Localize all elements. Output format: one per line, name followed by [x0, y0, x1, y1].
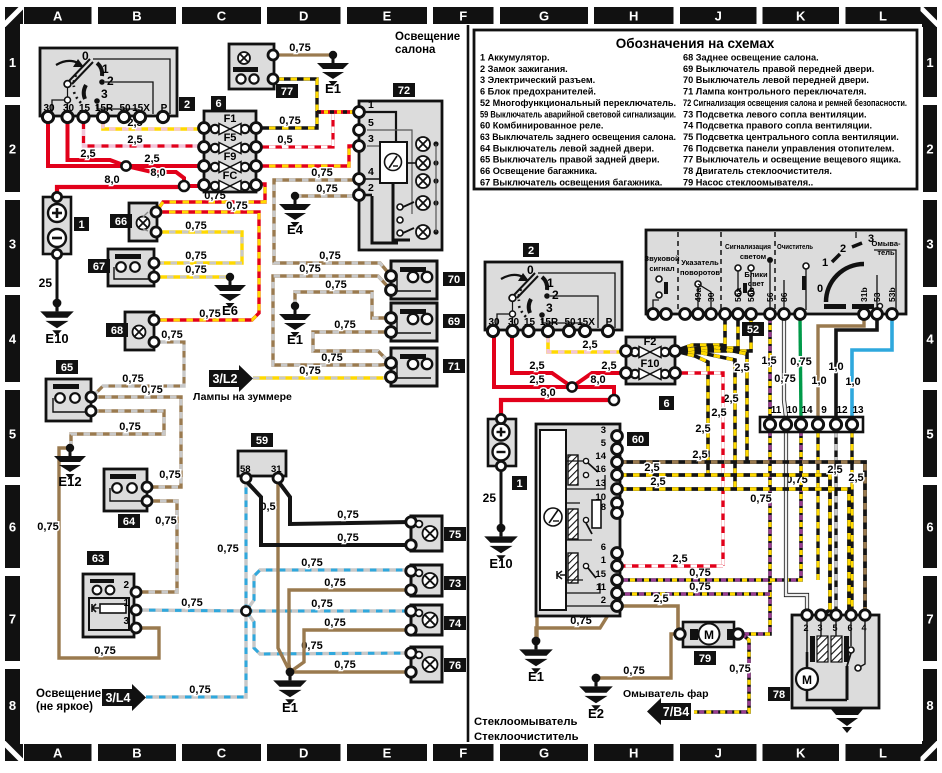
svg-text:L: L [879, 9, 887, 24]
svg-text:J: J [715, 746, 722, 761]
svg-text:31b: 31b [859, 287, 869, 302]
svg-text:73 Подсветка левого сопла вент: 73 Подсветка левого сопла вентиляции. [683, 109, 867, 119]
svg-text:E10: E10 [489, 556, 512, 571]
svg-text:69: 69 [448, 316, 460, 328]
svg-text:71: 71 [448, 361, 460, 373]
svg-text:7: 7 [926, 612, 933, 627]
svg-text:M: M [802, 673, 812, 687]
svg-text:8,0: 8,0 [104, 174, 119, 186]
svg-text:66 Освещение багажника.: 66 Освещение багажника. [480, 166, 597, 176]
svg-text:0,75: 0,75 [623, 665, 644, 677]
svg-text:F5: F5 [224, 132, 237, 144]
svg-text:FC: FC [223, 170, 238, 182]
svg-text:3: 3 [601, 425, 606, 436]
svg-text:0,75: 0,75 [311, 598, 332, 610]
svg-text:75: 75 [449, 529, 461, 541]
svg-text:Указатель: Указатель [681, 258, 719, 267]
svg-text:52 Многофункциональный переклю: 52 Многофункциональный переключатель. [480, 98, 676, 108]
svg-text:2: 2 [803, 623, 808, 633]
svg-text:1: 1 [516, 478, 522, 490]
svg-text:7/B4: 7/B4 [663, 705, 689, 719]
svg-text:0,75: 0,75 [337, 532, 358, 544]
svg-text:78 Двигатель стеклоочистителя.: 78 Двигатель стеклоочистителя. [683, 166, 832, 176]
svg-text:69 Выключатель правой передней: 69 Выключатель правой передней двери. [683, 64, 874, 74]
svg-text:60 Комбинированное реле.: 60 Комбинированное реле. [480, 121, 603, 131]
svg-text:2,5: 2,5 [695, 423, 710, 435]
svg-text:2,5: 2,5 [827, 464, 842, 476]
svg-text:2,5: 2,5 [653, 593, 668, 605]
svg-text:14: 14 [801, 405, 813, 416]
svg-text:6 Блок предохранителей.: 6 Блок предохранителей. [480, 87, 596, 97]
svg-text:0,75: 0,75 [334, 319, 355, 331]
svg-text:14: 14 [595, 451, 606, 462]
svg-text:0,75: 0,75 [689, 581, 710, 593]
svg-text:70: 70 [448, 274, 460, 286]
svg-text:Лампы на зуммере: Лампы на зуммере [193, 391, 292, 403]
svg-text:поворотов: поворотов [680, 268, 720, 277]
svg-text:0,75: 0,75 [334, 659, 355, 671]
svg-text:72 Сигнализация освещения сало: 72 Сигнализация освещения салона и ремне… [683, 98, 907, 108]
svg-text:59 Выключатель аварийной свето: 59 Выключатель аварийной световой сигнал… [480, 109, 676, 119]
svg-text:0,75: 0,75 [321, 352, 342, 364]
svg-text:3 Электрический разъем.: 3 Электрический разъем. [480, 75, 595, 85]
svg-text:F: F [459, 9, 467, 24]
svg-text:86: 86 [779, 292, 789, 302]
svg-text:1: 1 [78, 219, 84, 231]
svg-text:1,0: 1,0 [828, 361, 843, 373]
svg-text:4: 4 [926, 332, 934, 347]
svg-text:79 Насос стеклоомывателя..: 79 Насос стеклоомывателя.. [683, 177, 813, 187]
svg-text:12: 12 [836, 405, 848, 416]
svg-text:B: B [132, 746, 141, 761]
svg-text:2,5: 2,5 [650, 476, 665, 488]
svg-text:3: 3 [817, 623, 822, 633]
svg-text:(не яркое): (не яркое) [36, 701, 93, 713]
svg-text:E1: E1 [282, 700, 298, 715]
svg-text:6: 6 [926, 520, 933, 535]
svg-text:8,0: 8,0 [150, 167, 165, 179]
svg-text:F10: F10 [641, 358, 660, 370]
svg-text:Освещение: Освещение [395, 31, 460, 43]
svg-text:1: 1 [123, 598, 129, 609]
svg-text:F1: F1 [224, 113, 237, 125]
svg-text:2,5: 2,5 [582, 339, 597, 351]
svg-text:C: C [217, 9, 227, 24]
svg-text:70 Выключатель левой передней: 70 Выключатель левой передней двери. [683, 75, 869, 85]
svg-text:G: G [539, 746, 549, 761]
svg-text:E2: E2 [588, 706, 604, 721]
svg-text:Стеклоочиститель: Стеклоочиститель [474, 731, 579, 743]
svg-text:Омыватель фар: Омыватель фар [623, 688, 709, 700]
svg-text:6: 6 [847, 623, 852, 633]
svg-text:77: 77 [281, 86, 293, 98]
svg-text:49a: 49a [693, 288, 703, 302]
svg-text:64 Выключатель левой задней дв: 64 Выключатель левой задней двери. [480, 143, 654, 153]
svg-text:M: M [704, 628, 714, 642]
svg-text:7: 7 [9, 612, 16, 627]
svg-text:Стеклоомыватель: Стеклоомыватель [474, 716, 578, 728]
svg-text:30: 30 [706, 292, 716, 302]
svg-text:2,5: 2,5 [672, 553, 687, 565]
svg-text:0: 0 [817, 283, 823, 295]
svg-text:K: K [796, 9, 806, 24]
svg-text:4: 4 [861, 623, 866, 633]
svg-text:A: A [53, 746, 63, 761]
svg-text:76: 76 [449, 660, 461, 672]
svg-text:3: 3 [868, 233, 874, 245]
svg-text:0,75: 0,75 [319, 250, 340, 262]
svg-text:56: 56 [765, 292, 775, 302]
svg-text:78: 78 [773, 689, 785, 701]
svg-text:77 Выключатель и освещение вещ: 77 Выключатель и освещение вещевого ящик… [683, 155, 901, 165]
svg-text:0,75: 0,75 [301, 557, 322, 569]
svg-text:E1: E1 [528, 669, 544, 684]
svg-text:72: 72 [398, 85, 410, 97]
svg-text:2: 2 [9, 142, 16, 157]
svg-text:0,75: 0,75 [324, 617, 345, 629]
svg-text:3: 3 [123, 616, 129, 627]
svg-text:1,5: 1,5 [761, 355, 776, 367]
svg-text:F9: F9 [224, 151, 237, 163]
svg-text:2,5: 2,5 [80, 148, 95, 160]
svg-text:59: 59 [256, 435, 268, 447]
svg-text:6: 6 [601, 542, 606, 553]
svg-text:8: 8 [601, 502, 606, 513]
svg-text:0,75: 0,75 [155, 515, 176, 527]
svg-text:E: E [383, 9, 392, 24]
svg-text:3/L4: 3/L4 [105, 691, 130, 705]
svg-text:0,75: 0,75 [337, 509, 358, 521]
svg-text:6: 6 [215, 98, 221, 110]
svg-text:свет: свет [748, 279, 765, 288]
svg-text:74 Подсветка правого сопла вен: 74 Подсветка правого сопла вентиляции. [683, 121, 872, 131]
svg-text:0,75: 0,75 [324, 577, 345, 589]
svg-text:3/L2: 3/L2 [212, 372, 237, 386]
svg-text:E1: E1 [325, 81, 341, 96]
svg-text:D: D [299, 9, 308, 24]
svg-text:65 Выключатель правой задней д: 65 Выключатель правой задней двери. [480, 155, 660, 165]
svg-text:Омыва-: Омыва- [872, 239, 901, 248]
svg-text:11: 11 [771, 405, 782, 416]
svg-text:5: 5 [601, 438, 607, 449]
svg-text:0,75: 0,75 [325, 279, 346, 291]
svg-text:0,75: 0,75 [279, 115, 300, 127]
svg-text:2,5: 2,5 [711, 407, 726, 419]
svg-text:8: 8 [9, 698, 16, 713]
svg-text:0,75: 0,75 [119, 421, 140, 433]
svg-text:6: 6 [663, 398, 669, 410]
svg-text:5: 5 [9, 427, 16, 442]
svg-text:0,75: 0,75 [729, 663, 750, 675]
svg-text:3: 3 [9, 237, 16, 252]
svg-text:2,5: 2,5 [692, 449, 707, 461]
svg-text:4: 4 [9, 332, 17, 347]
svg-text:0,5: 0,5 [277, 134, 292, 146]
svg-text:1,0: 1,0 [811, 375, 826, 387]
svg-text:2: 2 [926, 142, 933, 157]
svg-text:0,75: 0,75 [185, 264, 206, 276]
svg-text:2: 2 [528, 245, 534, 257]
svg-text:0,75: 0,75 [189, 684, 210, 696]
svg-text:0,75: 0,75 [790, 356, 811, 368]
svg-text:K: K [796, 746, 806, 761]
svg-text:G: G [539, 9, 549, 24]
svg-text:9: 9 [821, 405, 827, 416]
svg-text:2,5: 2,5 [644, 462, 659, 474]
svg-text:1 Аккумулятор.: 1 Аккумулятор. [480, 53, 550, 63]
svg-text:0,75: 0,75 [311, 167, 332, 179]
svg-text:25: 25 [39, 276, 53, 290]
svg-text:0,75: 0,75 [159, 469, 180, 481]
svg-text:Очиститель: Очиститель [777, 242, 813, 251]
svg-text:Обозначения на схемах: Обозначения на схемах [616, 36, 775, 51]
svg-text:2,5: 2,5 [529, 360, 544, 372]
svg-text:салона: салона [395, 44, 436, 56]
svg-text:6: 6 [9, 520, 16, 535]
svg-text:66: 66 [115, 216, 127, 228]
svg-text:0,75: 0,75 [316, 183, 337, 195]
svg-text:2,5: 2,5 [601, 360, 616, 372]
svg-text:0,75: 0,75 [299, 365, 320, 377]
svg-text:67: 67 [93, 261, 105, 273]
svg-text:1,0: 1,0 [845, 376, 860, 388]
svg-text:52: 52 [747, 324, 759, 336]
svg-text:0,75: 0,75 [181, 597, 202, 609]
svg-text:0,75: 0,75 [161, 329, 182, 341]
svg-text:E12: E12 [58, 474, 81, 489]
svg-text:2,5: 2,5 [144, 153, 159, 165]
svg-text:67 Выключатель освещения багаж: 67 Выключатель освещения багажника. [480, 177, 662, 187]
svg-text:73: 73 [449, 578, 461, 590]
svg-text:16: 16 [595, 464, 606, 475]
svg-text:E6: E6 [222, 303, 238, 318]
svg-text:10: 10 [786, 405, 798, 416]
svg-text:L: L [879, 746, 887, 761]
svg-text:сигнал: сигнал [649, 264, 675, 273]
svg-text:0,75: 0,75 [94, 645, 115, 657]
svg-text:53b: 53b [887, 287, 897, 302]
svg-text:63: 63 [92, 553, 104, 565]
svg-text:76 Подсветка панели управления: 76 Подсветка панели управления отопителе… [683, 143, 894, 153]
svg-text:68 Заднее освещение салона.: 68 Заднее освещение салона. [683, 53, 819, 63]
svg-text:2,5: 2,5 [127, 134, 142, 146]
svg-text:J: J [715, 9, 722, 24]
svg-text:1: 1 [9, 55, 16, 70]
svg-text:0,75: 0,75 [217, 543, 238, 555]
svg-text:8,0: 8,0 [590, 374, 605, 386]
svg-text:3: 3 [368, 133, 374, 145]
svg-text:E: E [383, 746, 392, 761]
svg-text:13: 13 [595, 478, 606, 489]
svg-text:F2: F2 [644, 336, 657, 348]
svg-text:0,75: 0,75 [774, 373, 795, 385]
svg-text:5: 5 [368, 117, 374, 129]
svg-text:светом: светом [740, 252, 767, 261]
svg-text:A: A [53, 9, 63, 24]
svg-text:0,75: 0,75 [37, 521, 58, 533]
svg-text:0,75: 0,75 [689, 567, 710, 579]
svg-text:E1: E1 [287, 332, 303, 347]
svg-text:8,0: 8,0 [540, 387, 555, 399]
svg-text:H: H [629, 746, 638, 761]
svg-text:79: 79 [699, 653, 711, 665]
svg-text:0,75: 0,75 [185, 220, 206, 232]
svg-text:2,5: 2,5 [734, 362, 749, 374]
svg-text:60: 60 [632, 434, 644, 446]
svg-text:68: 68 [111, 325, 123, 337]
svg-text:C: C [217, 746, 227, 761]
svg-text:8: 8 [926, 698, 933, 713]
svg-text:Звуковой: Звуковой [644, 254, 680, 263]
svg-text:0,75: 0,75 [199, 308, 220, 320]
svg-text:75 Подсветка центрального сопл: 75 Подсветка центрального сопла вентиляц… [683, 132, 899, 142]
svg-text:74: 74 [449, 618, 462, 630]
svg-text:E10: E10 [45, 331, 68, 346]
svg-text:0,75: 0,75 [289, 42, 310, 54]
svg-text:Сигнализация: Сигнализация [725, 242, 771, 251]
svg-text:1: 1 [601, 555, 607, 566]
svg-text:0,75: 0,75 [750, 493, 771, 505]
svg-text:53: 53 [872, 292, 882, 302]
svg-text:3: 3 [926, 237, 933, 252]
svg-text:13: 13 [852, 405, 864, 416]
svg-text:0,75: 0,75 [185, 250, 206, 262]
svg-text:71 Лампа контрольного переключ: 71 Лампа контрольного переключателя. [683, 87, 866, 97]
svg-text:2 Замок зажигания.: 2 Замок зажигания. [480, 64, 568, 74]
svg-text:E4: E4 [287, 222, 304, 237]
svg-text:2: 2 [840, 243, 846, 255]
svg-text:65: 65 [61, 362, 73, 374]
svg-text:D: D [299, 746, 308, 761]
svg-text:2,5: 2,5 [529, 374, 544, 386]
svg-text:1: 1 [368, 99, 374, 111]
svg-text:2: 2 [601, 595, 606, 606]
svg-text:0,75: 0,75 [299, 263, 320, 275]
svg-text:H: H [629, 9, 638, 24]
svg-text:4: 4 [368, 166, 374, 178]
svg-text:0,75: 0,75 [141, 384, 162, 396]
svg-text:2,5: 2,5 [723, 393, 738, 405]
svg-text:2: 2 [123, 580, 129, 591]
svg-text:56a: 56a [733, 288, 743, 302]
svg-text:15: 15 [595, 569, 606, 580]
svg-text:5: 5 [832, 623, 837, 633]
svg-text:63 Выключатель заднего освещен: 63 Выключатель заднего освещения салона. [480, 132, 676, 142]
svg-text:2: 2 [184, 99, 190, 111]
svg-text:64: 64 [123, 516, 136, 528]
svg-text:Блики: Блики [744, 270, 768, 279]
svg-text:B: B [132, 9, 141, 24]
svg-text:1: 1 [822, 257, 828, 269]
svg-text:0,75: 0,75 [226, 200, 247, 212]
svg-text:25: 25 [483, 491, 497, 505]
svg-text:2,5: 2,5 [848, 472, 863, 484]
svg-text:2: 2 [368, 182, 374, 194]
svg-text:1: 1 [926, 55, 933, 70]
svg-text:5: 5 [926, 427, 933, 442]
svg-text:Освещение: Освещение [36, 688, 101, 700]
svg-text:56b: 56b [746, 287, 756, 302]
svg-text:11: 11 [596, 582, 607, 593]
svg-text:F: F [459, 746, 467, 761]
